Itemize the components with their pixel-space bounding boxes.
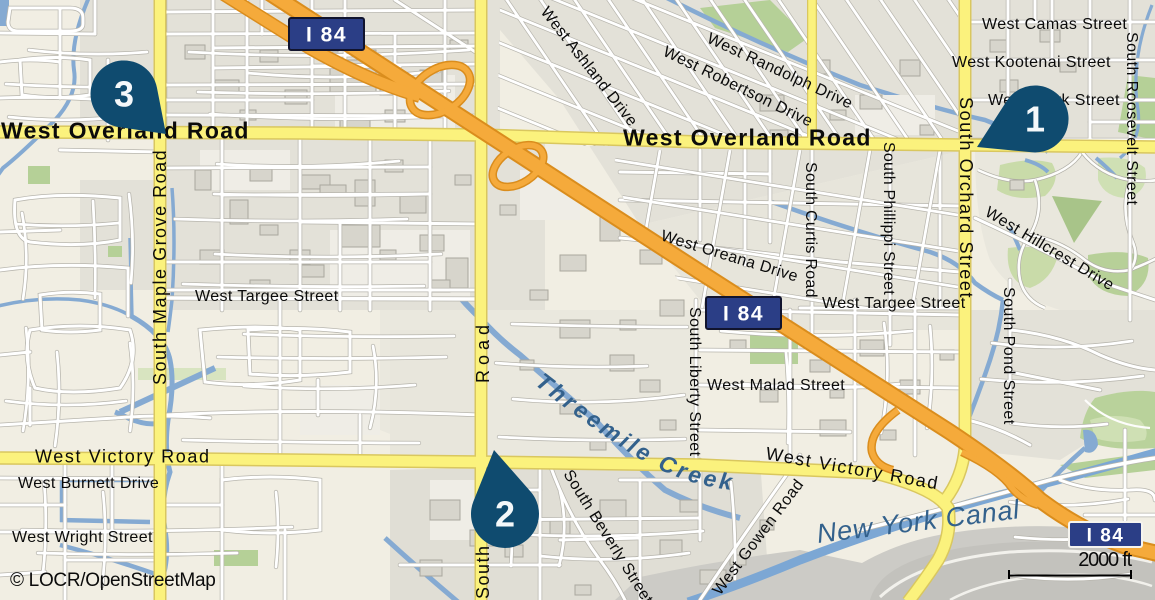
svg-text:West Targee Street: West Targee Street xyxy=(195,288,339,305)
svg-text:© LOCR/OpenStreetMap: © LOCR/OpenStreetMap xyxy=(10,570,215,591)
svg-text:South: South xyxy=(473,544,493,599)
svg-text:West Camas Street: West Camas Street xyxy=(982,16,1127,33)
svg-text:West Overland Road: West Overland Road xyxy=(623,125,872,151)
svg-text:South Phillippi Street: South Phillippi Street xyxy=(880,142,897,295)
svg-text:South Orchard Street: South Orchard Street xyxy=(956,97,976,299)
svg-text:3: 3 xyxy=(114,74,134,115)
svg-text:I 84: I 84 xyxy=(306,24,347,47)
svg-text:West Kootenai Street: West Kootenai Street xyxy=(952,54,1111,71)
svg-text:Road: Road xyxy=(473,320,493,383)
svg-text:2000 ft: 2000 ft xyxy=(1078,549,1132,571)
svg-text:South Pond Street: South Pond Street xyxy=(1000,287,1017,425)
svg-text:West Victory Road: West Victory Road xyxy=(35,447,211,467)
svg-text:I 84: I 84 xyxy=(1087,525,1125,546)
svg-text:I 84: I 84 xyxy=(723,303,764,326)
svg-text:South Maple Grove Road: South Maple Grove Road xyxy=(150,149,170,385)
svg-text:2: 2 xyxy=(495,494,515,535)
svg-text:West Wright Street: West Wright Street xyxy=(12,529,153,546)
svg-text:West Malad Street: West Malad Street xyxy=(707,377,845,394)
svg-text:1: 1 xyxy=(1025,99,1045,140)
svg-text:West Burnett Drive: West Burnett Drive xyxy=(18,475,159,492)
svg-text:South Curtis Road: South Curtis Road xyxy=(802,162,819,298)
svg-text:South Roosevelt Street: South Roosevelt Street xyxy=(1123,32,1140,205)
svg-text:South Liberty Street: South Liberty Street xyxy=(686,307,703,457)
svg-text:West Targee Street: West Targee Street xyxy=(822,295,966,312)
